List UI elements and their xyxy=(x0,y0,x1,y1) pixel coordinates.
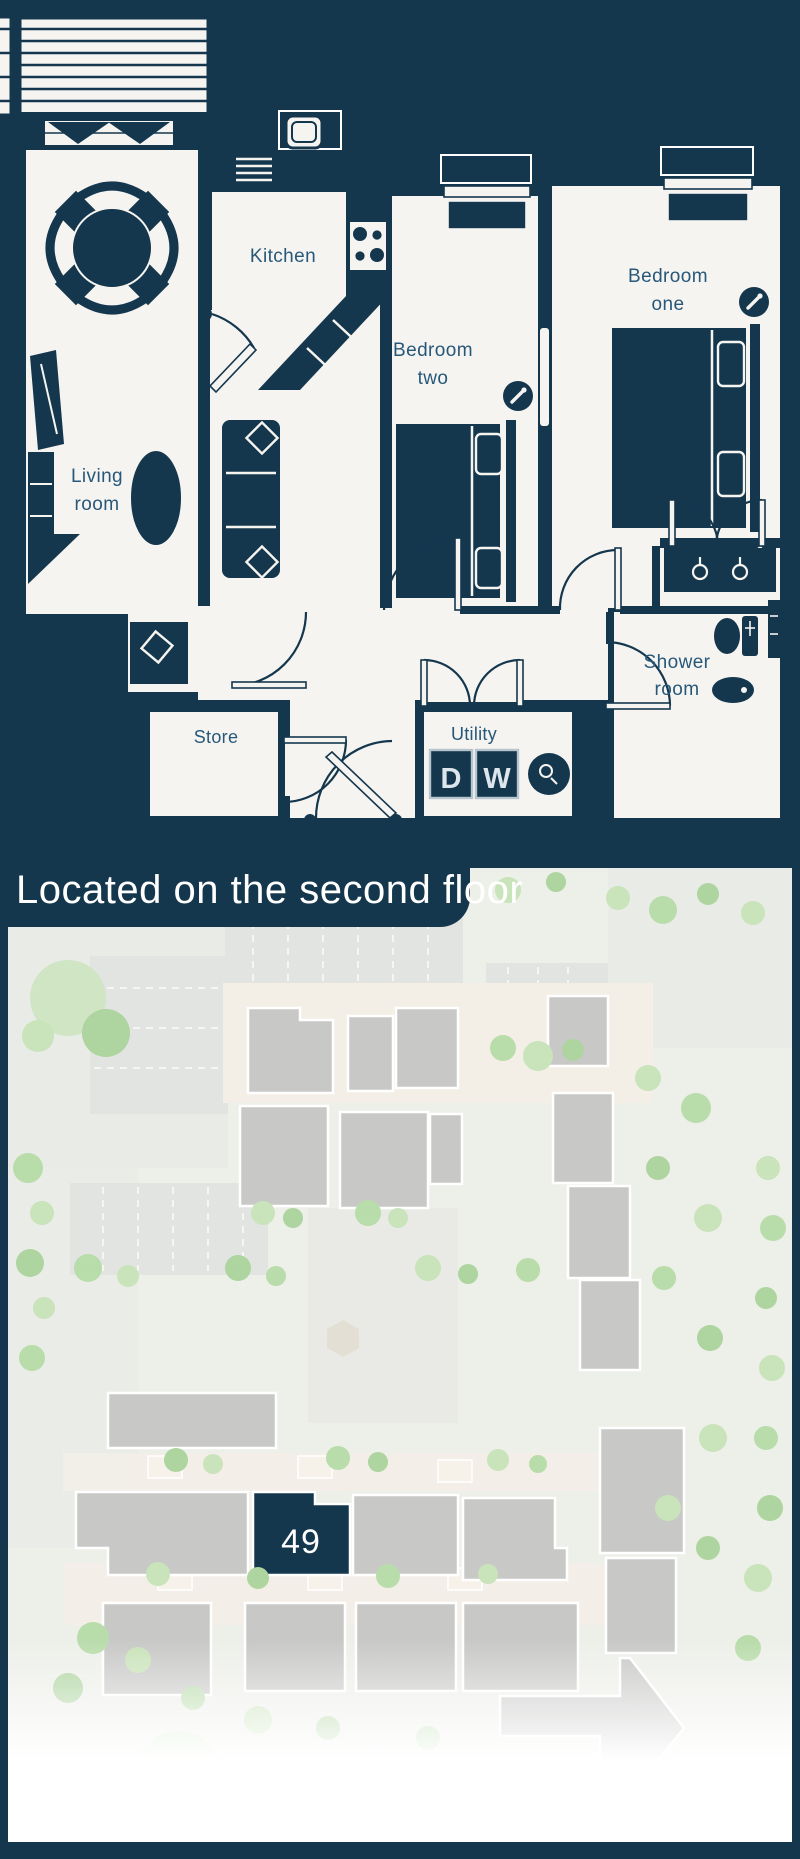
building-block xyxy=(240,1106,328,1206)
balcony-decking-icon xyxy=(0,29,207,101)
pillow-icon xyxy=(476,434,502,474)
building-block xyxy=(430,1114,462,1184)
building-block xyxy=(348,1016,393,1091)
building-block xyxy=(463,1498,567,1580)
double-bed-icon xyxy=(612,324,760,532)
wall-light-icon xyxy=(739,287,769,317)
pillow-icon xyxy=(718,342,744,386)
property-details-page: D W xyxy=(0,0,800,1859)
bedroom-one-furniture xyxy=(612,287,769,570)
balcony xyxy=(0,16,210,116)
building-block xyxy=(248,1008,333,1093)
washing-machine-label: W xyxy=(483,763,511,795)
section-banner: Located on the second floor xyxy=(0,853,470,927)
shower-room-label-line2: room xyxy=(655,679,700,700)
media-unit-icon xyxy=(28,452,54,546)
sliding-wardrobe-icon xyxy=(540,328,549,426)
bedroom-one-label-line2: one xyxy=(652,294,685,315)
utility-label: Utility xyxy=(451,724,497,744)
building-block xyxy=(553,1093,613,1183)
unit-49-marker: 49 xyxy=(253,1492,350,1575)
wall-light-icon xyxy=(503,381,533,411)
kitchen-label: Kitchen xyxy=(250,246,316,267)
floorplan: D W xyxy=(0,0,800,848)
washing-machine-icon: W xyxy=(476,750,518,798)
basin-icon xyxy=(712,677,754,703)
bedroom-two-label-line1: Bedroom xyxy=(393,340,473,361)
curtain-box-icon xyxy=(448,201,526,229)
building-block xyxy=(606,1558,676,1653)
living-room-label-line1: Living xyxy=(71,466,123,487)
building-block xyxy=(396,1008,458,1088)
building-block xyxy=(580,1280,640,1370)
armchair-icon xyxy=(130,622,188,684)
curtain-box-icon xyxy=(668,193,748,221)
building-block xyxy=(353,1495,458,1575)
building-block xyxy=(340,1112,428,1208)
living-room-label-line2: room xyxy=(75,494,120,515)
tap-icon xyxy=(327,128,336,137)
radiator-icon xyxy=(768,600,780,658)
bedroom-two-label-line2: two xyxy=(418,368,449,389)
pillow-icon xyxy=(718,452,744,496)
garden-building xyxy=(108,1393,276,1448)
building-block xyxy=(568,1186,630,1278)
bedroom-one-label-line1: Bedroom xyxy=(628,266,708,287)
wardrobe-icon xyxy=(664,548,776,592)
shower-room-label-line1: Shower xyxy=(644,652,711,673)
pillow-icon xyxy=(476,548,502,588)
dishwasher-label: D xyxy=(441,763,462,795)
section-title: Located on the second floor xyxy=(0,868,523,913)
utility-appliances: D W xyxy=(430,750,570,798)
store-label: Store xyxy=(194,727,239,747)
coffee-table-icon xyxy=(130,450,182,546)
dishwasher-icon: D xyxy=(430,750,472,798)
boiler-icon xyxy=(528,753,570,795)
building-block xyxy=(600,1428,684,1553)
unit-49-label: 49 xyxy=(281,1523,321,1561)
siteplan-fade xyxy=(8,1640,792,1842)
sofa-icon xyxy=(222,420,280,578)
